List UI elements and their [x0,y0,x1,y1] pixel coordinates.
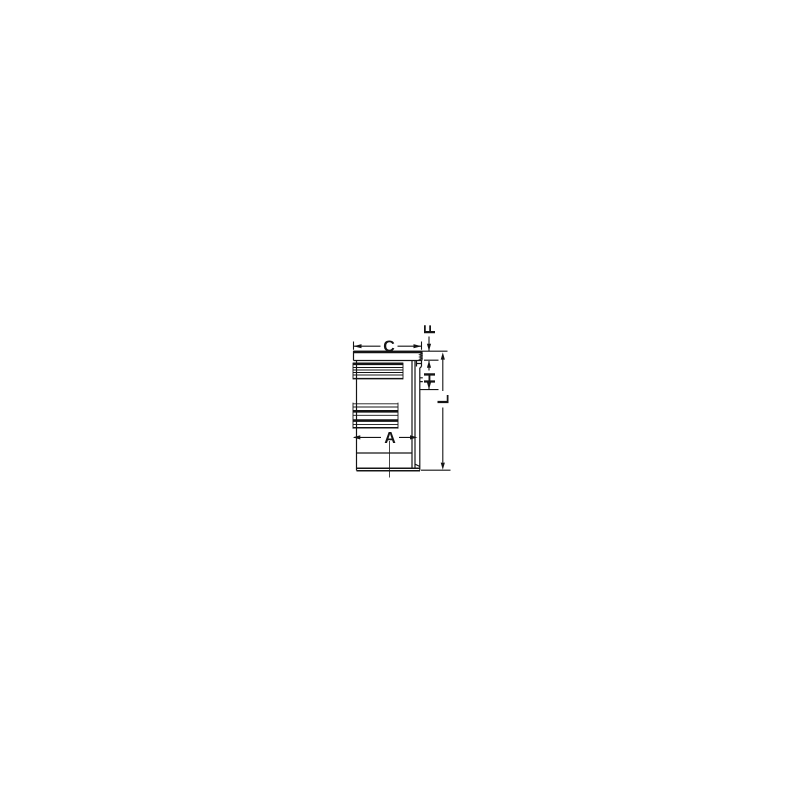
cylinder-liner-drawing: C F H L A [0,0,800,800]
dimension-l-label: L [436,394,453,404]
dimension-f-label: F [422,324,439,334]
dimension-h-label: H [422,372,439,384]
dimension-f: F [422,324,448,367]
dimension-l: L [421,352,453,470]
dimension-c-label: C [383,339,395,356]
dimension-a: A [353,430,418,447]
dimension-a-label: A [384,430,396,447]
liner-outline [353,351,423,477]
dimension-h: H [420,361,439,390]
